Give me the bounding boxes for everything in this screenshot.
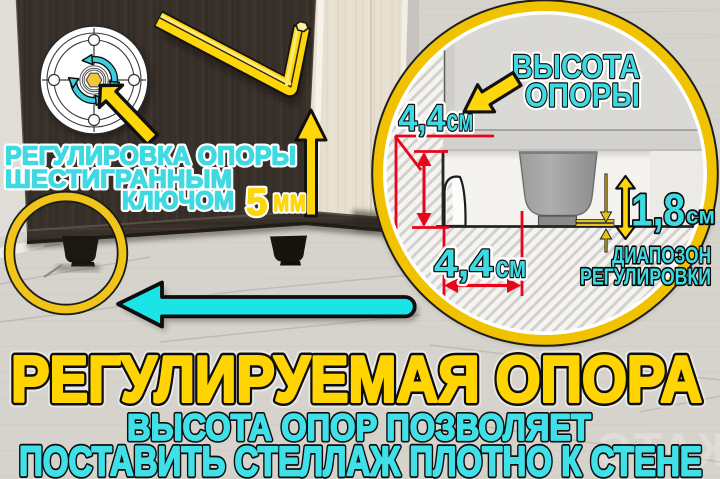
svg-text:мм: мм — [273, 183, 306, 218]
svg-text:5: 5 — [246, 181, 267, 224]
svg-text:см: см — [496, 249, 527, 284]
svg-text:КЛЮЧОМ: КЛЮЧОМ — [122, 187, 234, 215]
svg-text:РЕГУЛИРОВКИ: РЕГУЛИРОВКИ — [580, 264, 711, 290]
svg-text:РЕГУЛИРУЕМАЯ ОПОРА: РЕГУЛИРУЕМАЯ ОПОРА — [11, 344, 702, 416]
svg-text:1,8: 1,8 — [631, 185, 685, 236]
svg-text:см: см — [686, 203, 715, 229]
svg-text:ОПОРЫ: ОПОРЫ — [525, 77, 640, 114]
svg-text:4,4: 4,4 — [399, 98, 446, 139]
svg-text:4,4: 4,4 — [434, 243, 493, 286]
svg-text:ПОСТАВИТЬ СТЕЛЛАЖ ПЛОТНО К СТЕ: ПОСТАВИТЬ СТЕЛЛАЖ ПЛОТНО К СТЕНЕ — [19, 438, 702, 479]
